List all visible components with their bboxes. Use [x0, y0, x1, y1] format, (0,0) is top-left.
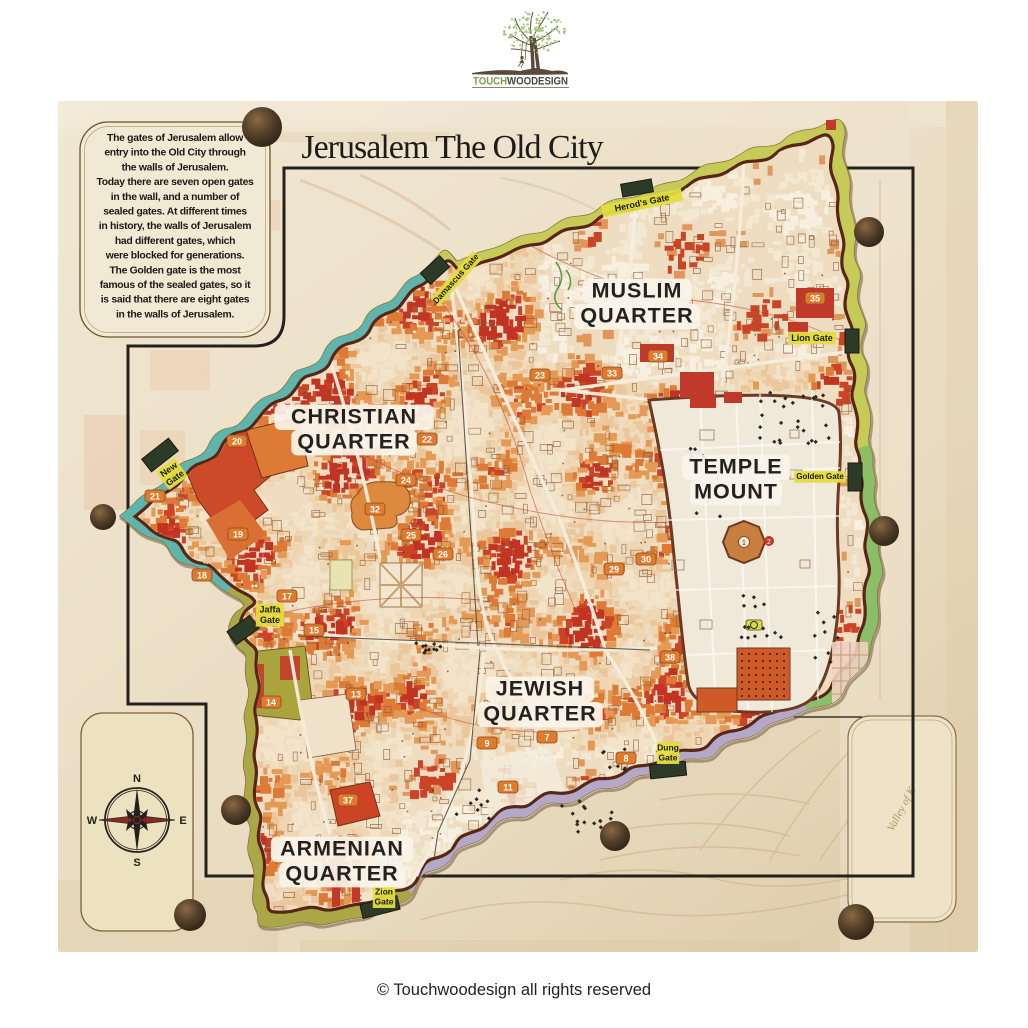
svg-text:22: 22: [422, 435, 432, 445]
svg-text:Gate: Gate: [659, 753, 678, 763]
svg-text:Golden Gate: Golden Gate: [796, 472, 844, 481]
svg-text:in the wall, and a number of: in the wall, and a number of: [111, 192, 240, 203]
svg-text:24: 24: [401, 476, 411, 486]
svg-text:The Golden gate is the most: The Golden gate is the most: [109, 265, 241, 276]
svg-text:20: 20: [232, 437, 242, 447]
svg-text:sealed gates. At different tim: sealed gates. At different times: [103, 207, 247, 218]
svg-text:CHRISTIAN: CHRISTIAN: [291, 404, 417, 428]
svg-text:in history, the walls of Jerus: in history, the walls of Jerusalem: [99, 221, 252, 232]
svg-text:19: 19: [233, 530, 243, 540]
svg-text:S: S: [133, 857, 140, 869]
svg-text:QUARTER: QUARTER: [297, 430, 410, 454]
svg-text:QUARTER: QUARTER: [285, 862, 398, 886]
svg-text:37: 37: [343, 796, 353, 806]
svg-text:were blocked for generations.: were blocked for generations.: [105, 251, 245, 262]
svg-text:33: 33: [607, 369, 617, 379]
svg-text:entry into the Old City throug: entry into the Old City through: [104, 148, 245, 159]
svg-text:TEMPLE: TEMPLE: [689, 454, 782, 478]
svg-text:26: 26: [438, 550, 448, 560]
svg-text:Gate: Gate: [375, 897, 394, 907]
svg-text:11: 11: [503, 783, 513, 793]
svg-text:25: 25: [406, 531, 416, 541]
svg-text:21: 21: [150, 492, 160, 502]
svg-text:23: 23: [535, 371, 545, 381]
svg-text:W: W: [87, 815, 98, 827]
svg-text:18: 18: [197, 571, 207, 581]
svg-text:14: 14: [266, 698, 276, 708]
svg-text:2: 2: [767, 539, 771, 546]
svg-text:E: E: [179, 815, 186, 827]
svg-text:35: 35: [810, 294, 820, 304]
svg-text:8: 8: [623, 754, 628, 764]
svg-text:Today there are seven open gat: Today there are seven open gates: [96, 177, 254, 188]
svg-text:N: N: [133, 773, 141, 785]
svg-text:MOUNT: MOUNT: [694, 480, 778, 504]
svg-text:30: 30: [641, 555, 651, 565]
svg-text:Jerusalem The Old City: Jerusalem The Old City: [301, 129, 603, 166]
svg-text:29: 29: [609, 565, 619, 575]
svg-text:15: 15: [309, 626, 319, 636]
svg-text:QUARTER: QUARTER: [580, 304, 693, 328]
svg-text:had different gates, which: had different gates, which: [115, 236, 235, 247]
svg-text:famous of the sealed gates, so: famous of the sealed gates, so it: [100, 280, 251, 291]
svg-text:MUSLIM: MUSLIM: [592, 278, 683, 302]
svg-text:Gate: Gate: [260, 615, 280, 625]
svg-text:© Touchwoodesign all rights re: © Touchwoodesign all rights reserved: [377, 981, 651, 999]
svg-text:1: 1: [742, 540, 746, 547]
svg-text:17: 17: [282, 592, 292, 602]
svg-text:the walls of Jerusalem.: the walls of Jerusalem.: [122, 162, 229, 173]
svg-text:QUARTER: QUARTER: [483, 702, 596, 726]
svg-text:38: 38: [665, 653, 675, 663]
svg-text:Lion Gate: Lion Gate: [791, 333, 833, 343]
svg-text:Dung: Dung: [657, 743, 679, 753]
svg-text:32: 32: [370, 505, 380, 515]
svg-text:JEWISH: JEWISH: [496, 676, 584, 700]
svg-text:Jaffa: Jaffa: [259, 605, 281, 615]
svg-text:Zion: Zion: [375, 887, 393, 897]
svg-text:The gates of Jerusalem allow: The gates of Jerusalem allow: [107, 133, 244, 144]
svg-text:TOUCHWOODESIGN: TOUCHWOODESIGN: [473, 76, 568, 88]
svg-text:7: 7: [544, 733, 549, 743]
svg-text:13: 13: [351, 690, 361, 700]
svg-text:34: 34: [653, 352, 663, 362]
svg-text:9: 9: [484, 739, 489, 749]
svg-text:in the walls of Jerusalem.: in the walls of Jerusalem.: [116, 309, 234, 320]
svg-text:is said that there are eight g: is said that there are eight gates: [101, 295, 250, 306]
svg-text:ARMENIAN: ARMENIAN: [280, 836, 404, 860]
